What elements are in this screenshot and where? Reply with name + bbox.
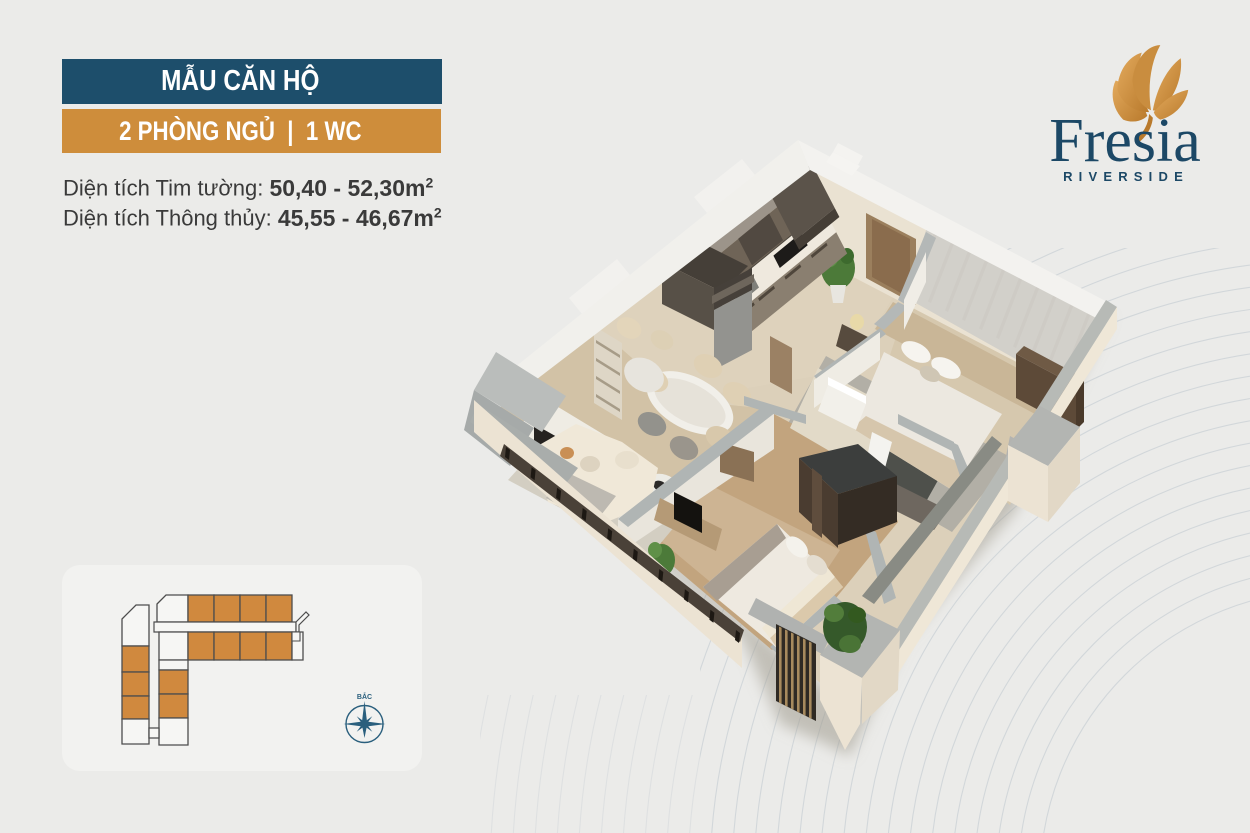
svg-text:RIVERSIDE: RIVERSIDE: [1063, 169, 1189, 184]
svg-text:Fresia: Fresia: [1049, 107, 1201, 175]
svg-text:BẮC: BẮC: [357, 692, 372, 701]
